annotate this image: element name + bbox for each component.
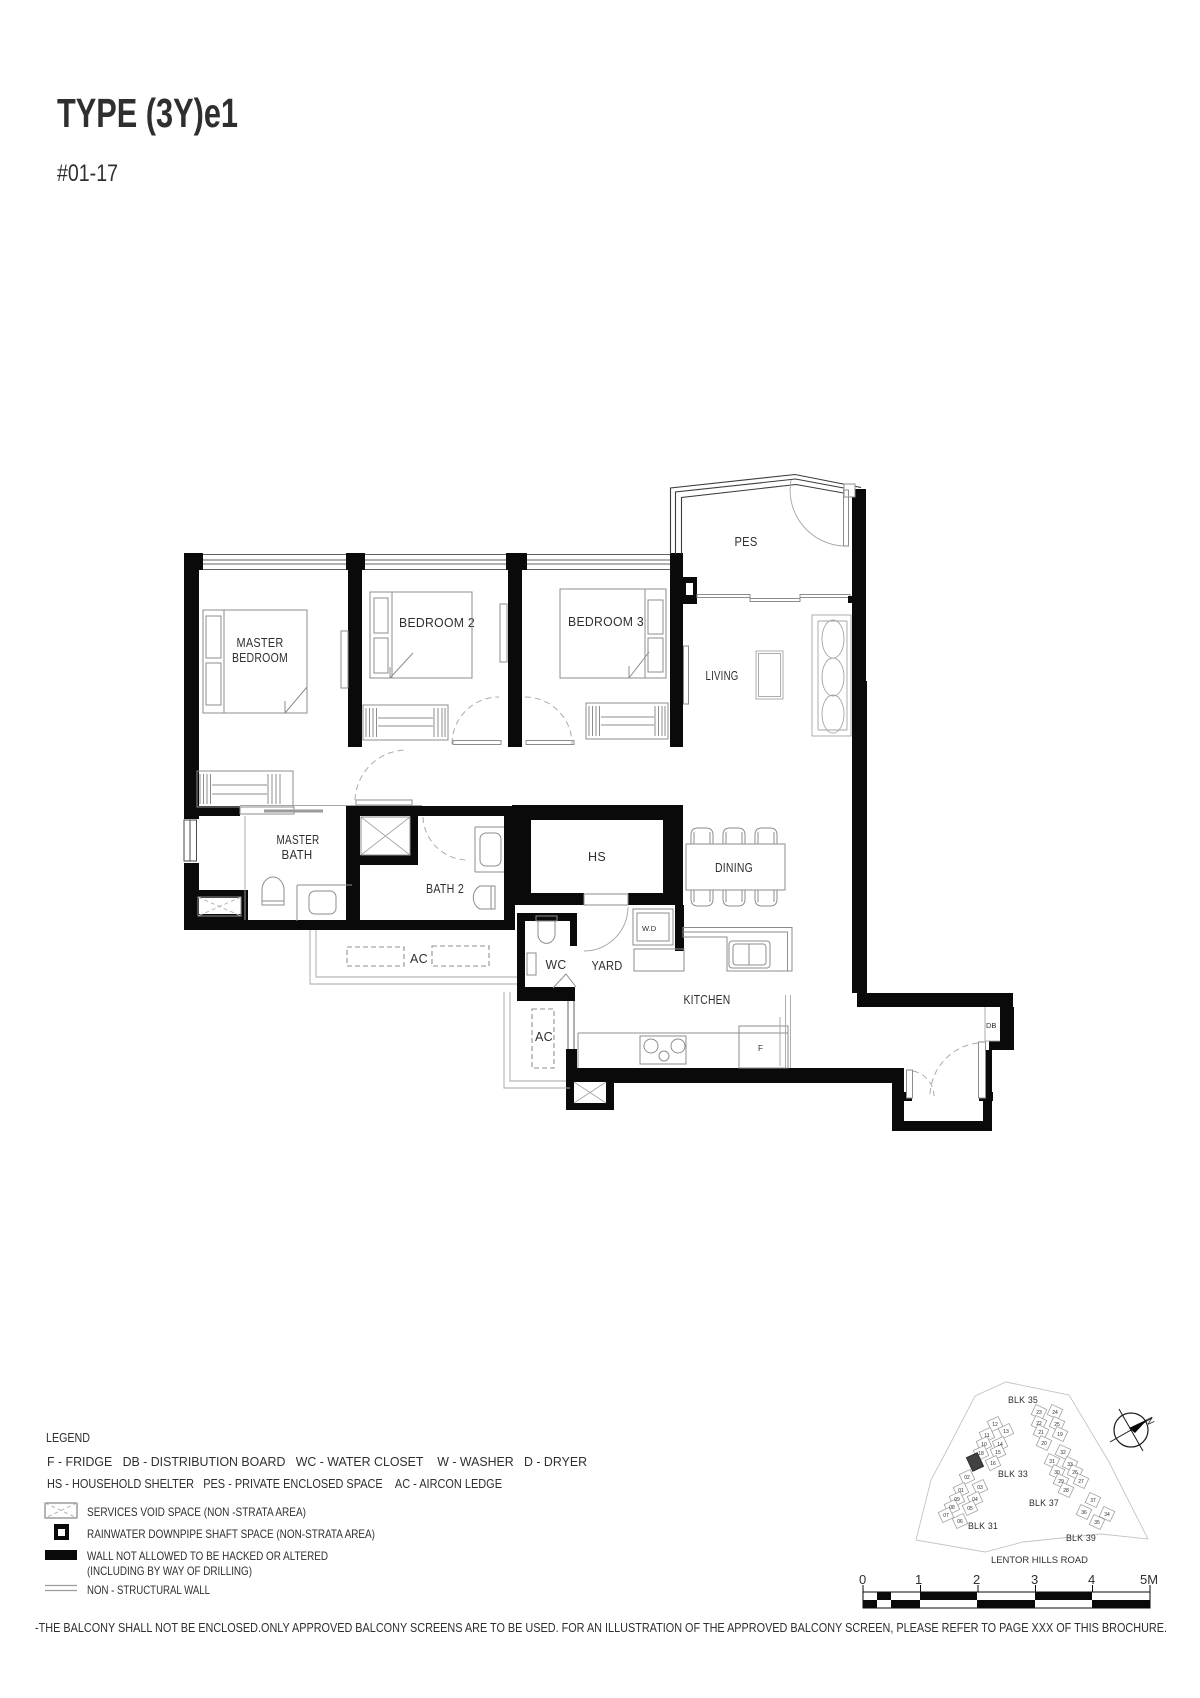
svg-text:33: 33 bbox=[1067, 1462, 1073, 1468]
svg-text:30: 30 bbox=[1054, 1470, 1060, 1476]
svg-text:BLK 33: BLK 33 bbox=[998, 1469, 1028, 1480]
svg-text:W.D: W.D bbox=[642, 924, 657, 933]
svg-text:34: 34 bbox=[1104, 1512, 1110, 1518]
svg-text:HS: HS bbox=[588, 849, 606, 864]
svg-text:18: 18 bbox=[978, 1451, 984, 1457]
svg-text:16: 16 bbox=[990, 1461, 996, 1467]
svg-text:KITCHEN: KITCHEN bbox=[684, 992, 731, 1007]
svg-text:20: 20 bbox=[1041, 1441, 1047, 1447]
svg-text:HS - HOUSEHOLD SHELTER PES -: HS - HOUSEHOLD SHELTER PES - PRIVATE ENC… bbox=[47, 1477, 502, 1491]
svg-text:35: 35 bbox=[1094, 1520, 1100, 1526]
svg-text:21: 21 bbox=[1038, 1430, 1044, 1436]
svg-text:2: 2 bbox=[973, 1572, 980, 1587]
svg-text:WC: WC bbox=[546, 957, 567, 972]
svg-text:36: 36 bbox=[1081, 1510, 1087, 1516]
svg-text:03: 03 bbox=[977, 1485, 983, 1491]
svg-text:05: 05 bbox=[967, 1506, 973, 1512]
svg-text:19: 19 bbox=[1057, 1432, 1063, 1438]
svg-text:10: 10 bbox=[981, 1442, 987, 1448]
svg-text:29: 29 bbox=[1058, 1479, 1064, 1485]
svg-text:3: 3 bbox=[1031, 1572, 1038, 1587]
svg-text:06: 06 bbox=[957, 1519, 963, 1525]
svg-text:31: 31 bbox=[1049, 1459, 1055, 1465]
svg-text:27: 27 bbox=[1078, 1479, 1084, 1485]
svg-text:(INCLUDING BY WAY OF DRILLING): (INCLUDING BY WAY OF DRILLING) bbox=[87, 1564, 252, 1578]
svg-text:BATH 2: BATH 2 bbox=[426, 881, 464, 896]
svg-text:LEGEND: LEGEND bbox=[46, 1431, 90, 1445]
svg-text:AC: AC bbox=[410, 951, 428, 966]
svg-text:15: 15 bbox=[995, 1450, 1001, 1456]
svg-text:BEDROOM: BEDROOM bbox=[232, 650, 288, 665]
svg-text:DINING: DINING bbox=[715, 860, 753, 875]
svg-text:04: 04 bbox=[972, 1497, 978, 1503]
svg-text:BEDROOM 2: BEDROOM 2 bbox=[399, 615, 475, 630]
svg-text:28: 28 bbox=[1063, 1488, 1069, 1494]
svg-text:TYPE (3Y)e1: TYPE (3Y)e1 bbox=[57, 90, 238, 136]
svg-text:02: 02 bbox=[964, 1475, 970, 1481]
svg-text:11: 11 bbox=[984, 1433, 989, 1439]
svg-text:07: 07 bbox=[943, 1513, 949, 1519]
svg-text:0: 0 bbox=[859, 1572, 866, 1587]
svg-text:13: 13 bbox=[1003, 1429, 1009, 1435]
svg-text:25: 25 bbox=[1054, 1422, 1060, 1428]
svg-text:BLK 39: BLK 39 bbox=[1066, 1533, 1096, 1544]
svg-text:LENTOR HILLS ROAD: LENTOR HILLS ROAD bbox=[991, 1555, 1088, 1566]
svg-text:22: 22 bbox=[1036, 1421, 1042, 1427]
svg-text:32: 32 bbox=[1060, 1450, 1066, 1456]
svg-text:BLK 31: BLK 31 bbox=[968, 1521, 998, 1532]
svg-text:BATH: BATH bbox=[282, 847, 313, 862]
svg-text:01: 01 bbox=[958, 1488, 964, 1494]
svg-text:F - FRIDGE DB - DISTRIBUTION: F - FRIDGE DB - DISTRIBUTION BOARD WC - … bbox=[47, 1455, 587, 1469]
svg-text:1: 1 bbox=[915, 1572, 922, 1587]
svg-text:MASTER: MASTER bbox=[237, 635, 284, 650]
svg-text:5M: 5M bbox=[1140, 1572, 1158, 1587]
svg-text:SERVICES VOID SPACE (NON -STRA: SERVICES VOID SPACE (NON -STRATA AREA) bbox=[87, 1505, 306, 1519]
svg-text:26: 26 bbox=[1072, 1470, 1078, 1476]
svg-text:09: 09 bbox=[954, 1497, 960, 1503]
svg-text:NON - STRUCTURAL WALL: NON - STRUCTURAL WALL bbox=[87, 1583, 210, 1597]
svg-text:#01-17: #01-17 bbox=[57, 160, 118, 187]
svg-text:-THE BALCONY SHALL NOT BE ENCL: -THE BALCONY SHALL NOT BE ENCLOSED.ONLY … bbox=[35, 1620, 1167, 1635]
svg-text:12: 12 bbox=[992, 1422, 998, 1428]
svg-text:23: 23 bbox=[1036, 1410, 1042, 1416]
svg-text:14: 14 bbox=[997, 1442, 1003, 1448]
svg-text:PES: PES bbox=[735, 534, 758, 549]
svg-text:BEDROOM 3: BEDROOM 3 bbox=[568, 614, 644, 629]
svg-text:4: 4 bbox=[1088, 1572, 1095, 1587]
svg-text:YARD: YARD bbox=[592, 958, 623, 973]
svg-text:WALL NOT ALLOWED TO BE HACKED: WALL NOT ALLOWED TO BE HACKED OR ALTERED bbox=[87, 1549, 328, 1563]
svg-text:37: 37 bbox=[1090, 1498, 1096, 1504]
svg-text:24: 24 bbox=[1052, 1410, 1058, 1416]
svg-text:LIVING: LIVING bbox=[706, 668, 739, 683]
svg-text:BLK 37: BLK 37 bbox=[1029, 1498, 1059, 1509]
svg-text:F: F bbox=[758, 1044, 763, 1053]
svg-text:RAINWATER DOWNPIPE SHAFT SPACE: RAINWATER DOWNPIPE SHAFT SPACE (NON-STRA… bbox=[87, 1527, 375, 1541]
svg-text:MASTER: MASTER bbox=[277, 832, 320, 847]
svg-text:AC: AC bbox=[535, 1029, 553, 1044]
svg-text:BLK 35: BLK 35 bbox=[1008, 1395, 1038, 1406]
svg-text:08: 08 bbox=[949, 1505, 955, 1511]
svg-text:DB: DB bbox=[986, 1021, 996, 1030]
